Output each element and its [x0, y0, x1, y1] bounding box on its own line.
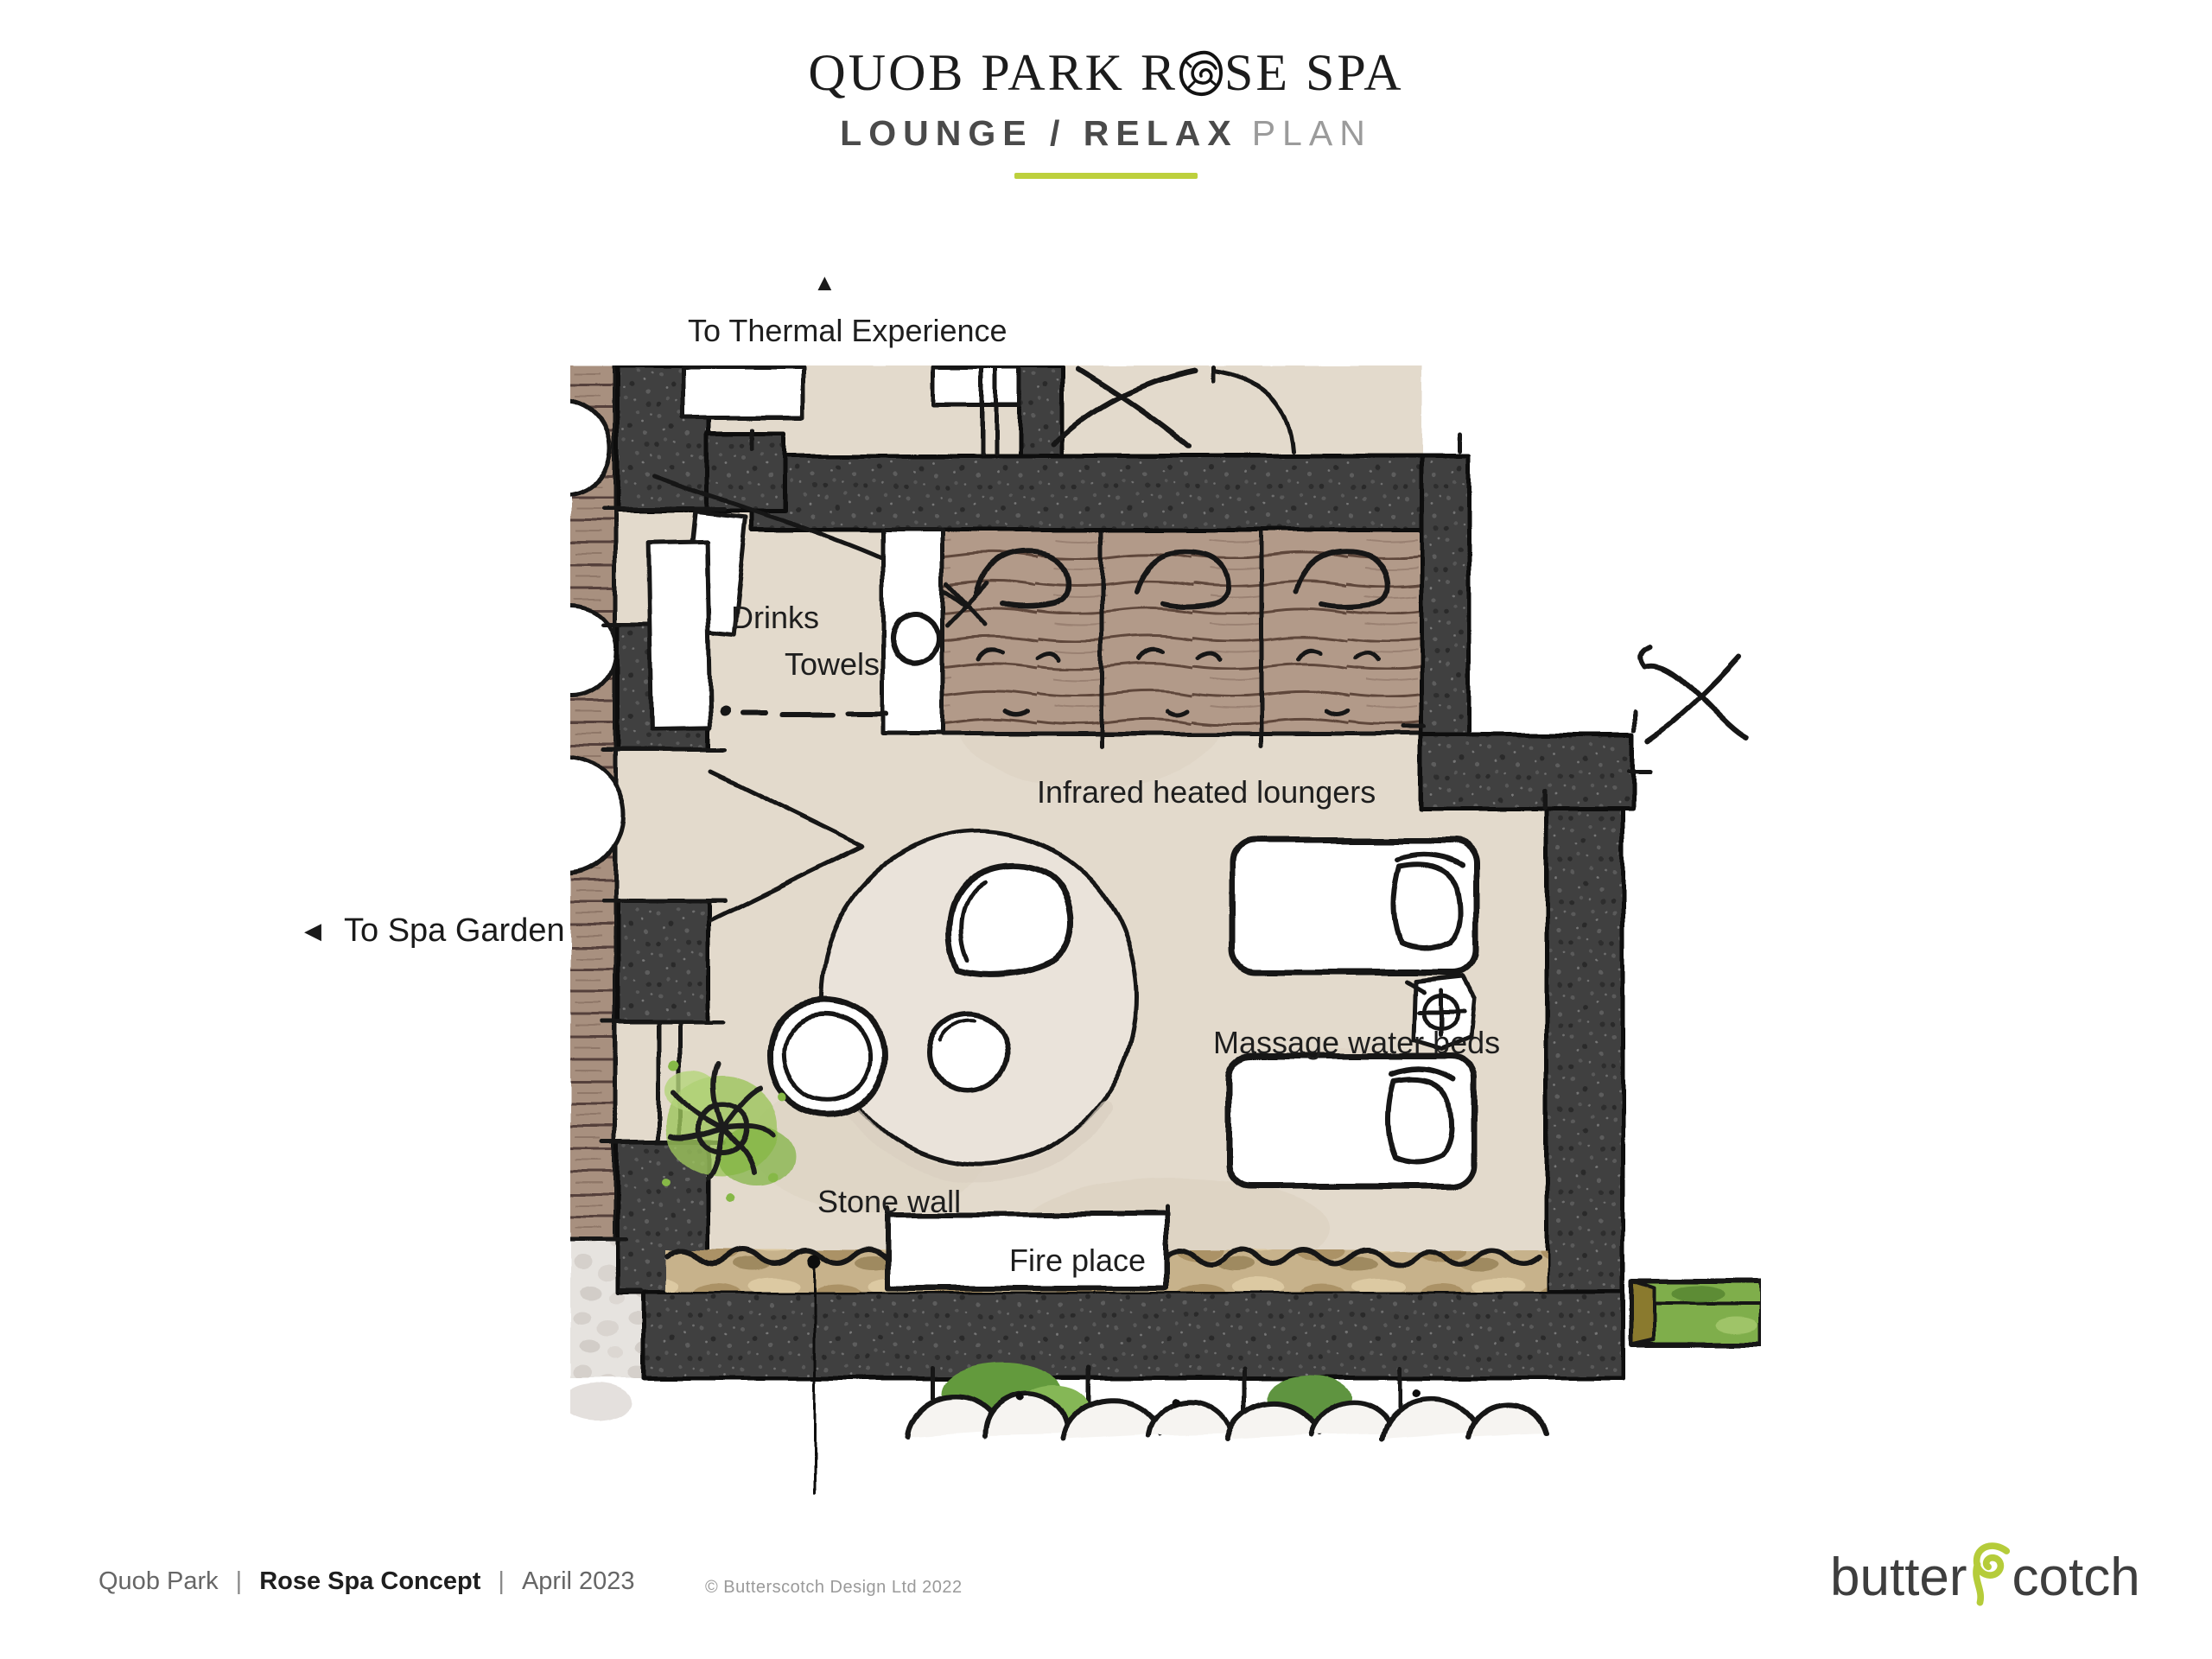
- label-to-spa-garden: To Spa Garden: [344, 912, 565, 950]
- outside-top-right: [1421, 365, 1761, 457]
- planter-strip: [1631, 1281, 1761, 1344]
- footer-separator: |: [236, 1567, 243, 1596]
- logo-text-left: butter: [1830, 1547, 1967, 1608]
- round-chair: [770, 1001, 883, 1114]
- label-fire-place: Fire place: [1009, 1243, 1146, 1279]
- label-to-spa-garden-row: ◀ To Spa Garden: [304, 912, 565, 950]
- drinks-cabinet: [648, 542, 710, 728]
- outside-right-lower: [1623, 734, 1761, 1532]
- logo-swirl-icon: [1968, 1540, 2012, 1609]
- outside-right-upper: [1469, 456, 1761, 736]
- label-stone-wall: Stone wall: [817, 1184, 961, 1220]
- title-text-left: QUOB PARK R: [808, 43, 1178, 103]
- header: QUOB PARK R SE SPA LOUNGE / RELAX PLAN: [0, 0, 2212, 154]
- label-drinks: Drinks: [731, 600, 819, 636]
- page-title: QUOB PARK R SE SPA: [0, 43, 2212, 103]
- garden-arrow-icon: ◀: [304, 918, 321, 944]
- footer-project: Quob Park: [99, 1567, 219, 1596]
- label-towels: Towels: [785, 646, 880, 683]
- pebble-blob: [570, 1383, 631, 1421]
- logo-text-right: cotch: [2012, 1547, 2140, 1608]
- label-infrared-loungers: Infrared heated loungers: [1037, 774, 1376, 810]
- page-subtitle: LOUNGE / RELAX PLAN: [0, 113, 2212, 154]
- thermal-arrow-icon: ▲: [813, 270, 836, 296]
- copyright-text: © Butterscotch Design Ltd 2022: [705, 1578, 963, 1598]
- footer-separator: |: [498, 1567, 505, 1596]
- footer-date: April 2023: [522, 1567, 635, 1596]
- footer-meta: Quob Park | Rose Spa Concept | April 202…: [99, 1567, 635, 1596]
- footer-concept: Rose Spa Concept: [259, 1567, 480, 1596]
- logo-swirl-path: [1976, 1546, 2006, 1603]
- rose-icon: [1179, 49, 1224, 98]
- towels-cabinet: [883, 530, 942, 733]
- deck-area: [942, 519, 1421, 746]
- title-text-right: SE SPA: [1224, 43, 1404, 103]
- accent-underline: [1014, 173, 1198, 179]
- round-table: [929, 1014, 1007, 1091]
- label-to-thermal-experience: To Thermal Experience: [688, 313, 1007, 349]
- subtitle-light: PLAN: [1252, 113, 1372, 154]
- butterscotch-logo: butter cotch: [1830, 1526, 2140, 1608]
- label-massage-water-beds: Massage water beds: [1213, 1025, 1500, 1061]
- page: QUOB PARK R SE SPA LOUNGE / RELAX PLAN: [0, 0, 2212, 1659]
- floor-plan-sketch: [570, 365, 1761, 1532]
- subtitle-bold: LOUNGE / RELAX: [840, 113, 1238, 154]
